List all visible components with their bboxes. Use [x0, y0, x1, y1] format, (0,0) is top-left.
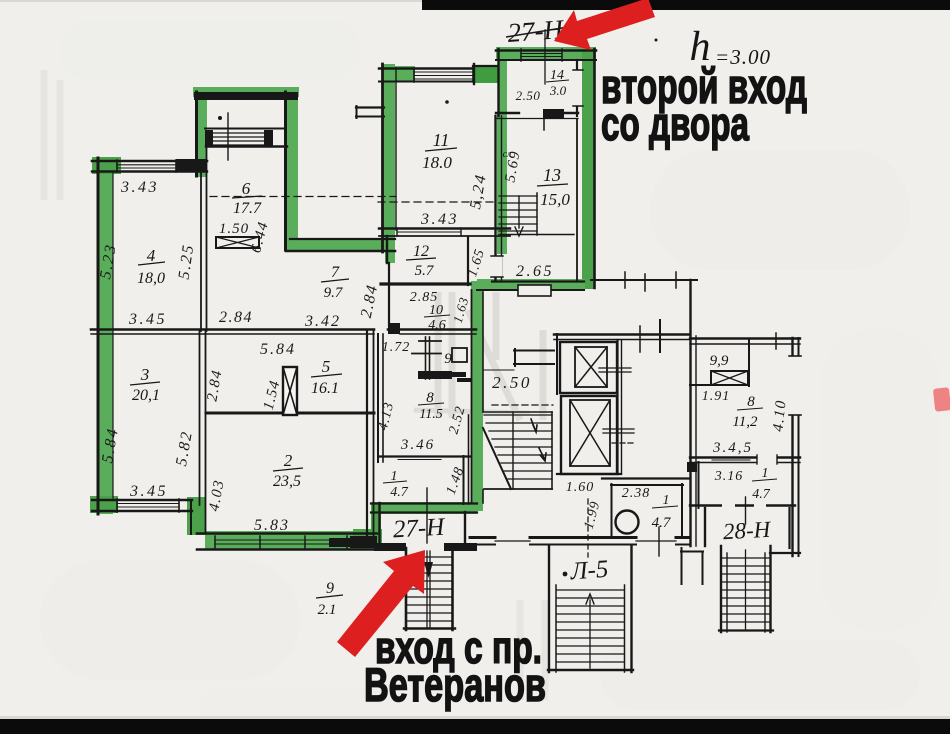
svg-text:3.43: 3.43 [120, 179, 159, 196]
svg-text:Л-5: Л-5 [569, 556, 610, 586]
svg-text:5: 5 [322, 357, 331, 376]
svg-text:6: 6 [242, 179, 251, 198]
svg-text:3.43: 3.43 [420, 211, 459, 228]
svg-text:2.38: 2.38 [622, 486, 651, 501]
svg-text:11: 11 [433, 130, 450, 150]
svg-text:13: 13 [543, 165, 561, 185]
svg-text:4: 4 [147, 246, 156, 265]
svg-text:2.84: 2.84 [219, 309, 253, 326]
svg-text:3.0: 3.0 [549, 83, 567, 98]
svg-text:8: 8 [747, 394, 755, 410]
svg-text:23,5: 23,5 [273, 473, 301, 490]
svg-text:17.7: 17.7 [233, 200, 262, 217]
svg-text:9: 9 [444, 351, 452, 367]
svg-text:28-Н: 28-Н [722, 517, 772, 545]
svg-text:3.42: 3.42 [304, 313, 341, 330]
svg-text:2.50: 2.50 [516, 88, 541, 103]
svg-text:3.4,5: 3.4,5 [712, 440, 753, 456]
svg-text:18.0: 18.0 [422, 153, 452, 172]
svg-text:11,2: 11,2 [732, 414, 758, 430]
svg-text:3.46: 3.46 [400, 437, 435, 453]
svg-text:9.7: 9.7 [324, 285, 344, 301]
svg-text:7: 7 [331, 264, 340, 281]
svg-text:1.91: 1.91 [702, 389, 731, 404]
svg-text:Ветеранов: Ветеранов [364, 658, 546, 711]
svg-text:4.6: 4.6 [428, 318, 446, 333]
svg-text:3: 3 [140, 365, 150, 384]
svg-text:со двора: со двора [601, 97, 750, 150]
svg-text:5.7: 5.7 [415, 263, 435, 279]
svg-text:4.7: 4.7 [390, 485, 409, 500]
svg-text:18,0: 18,0 [137, 270, 165, 287]
svg-text:20,1: 20,1 [132, 387, 160, 404]
svg-text:27-Н: 27-Н [392, 514, 447, 544]
svg-text:4.7: 4.7 [652, 515, 672, 531]
svg-text:11.5: 11.5 [419, 407, 442, 422]
svg-text:1: 1 [663, 493, 670, 508]
svg-text:3.16: 3.16 [714, 469, 744, 484]
svg-text:9: 9 [326, 580, 334, 597]
svg-text:2.1: 2.1 [318, 602, 337, 618]
svg-text:5.83: 5.83 [254, 517, 290, 534]
svg-text:4.10: 4.10 [770, 399, 789, 433]
svg-text:9,9: 9,9 [710, 353, 729, 369]
svg-text:27-Н: 27-Н [507, 14, 566, 48]
svg-text:3.45: 3.45 [129, 483, 168, 500]
svg-text:1: 1 [762, 466, 769, 481]
svg-text:сл: сл [503, 149, 512, 160]
svg-text:4.7: 4.7 [752, 487, 771, 502]
svg-text:16.1: 16.1 [311, 380, 339, 397]
svg-text:3.45: 3.45 [128, 311, 167, 328]
svg-text:15,0: 15,0 [540, 190, 570, 209]
svg-text:12: 12 [413, 243, 429, 260]
svg-text:2: 2 [284, 451, 293, 470]
svg-text:5.84: 5.84 [260, 341, 296, 358]
svg-text:2.50: 2.50 [492, 373, 532, 392]
svg-text:1.72: 1.72 [382, 340, 411, 355]
svg-text:1.50: 1.50 [219, 221, 249, 237]
svg-text:1.60: 1.60 [566, 480, 595, 495]
svg-text:2.65: 2.65 [516, 263, 554, 280]
